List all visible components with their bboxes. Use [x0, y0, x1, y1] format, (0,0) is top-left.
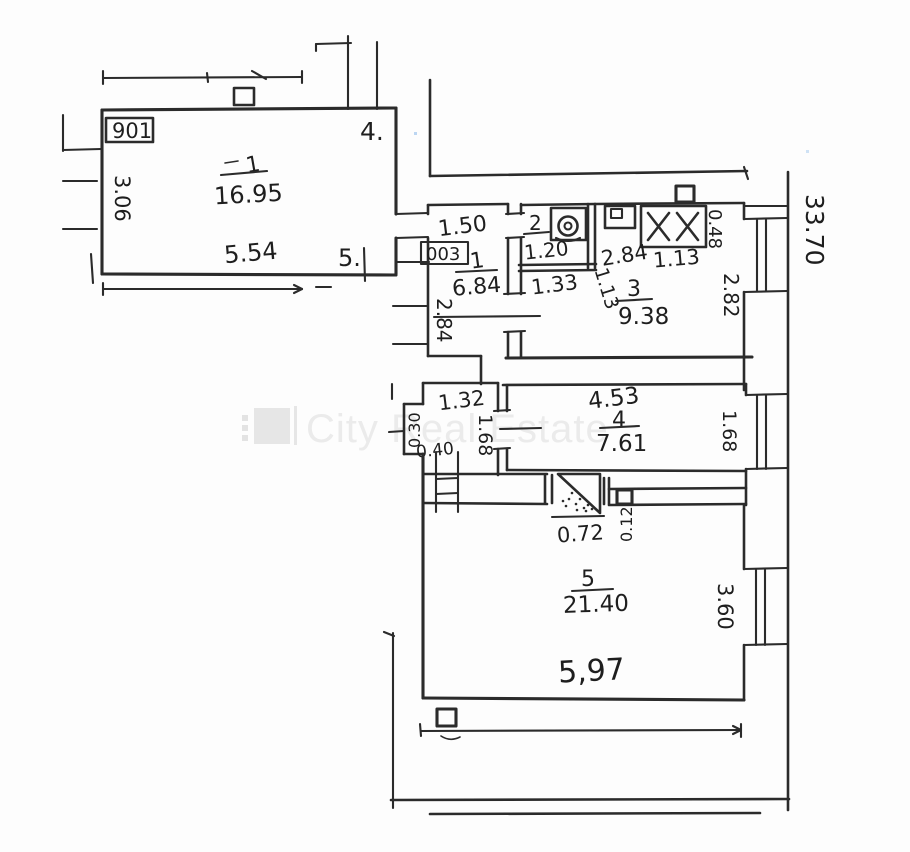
room5-depth: 3.60 [713, 583, 737, 630]
room4-number: 4 [612, 408, 626, 433]
scan-speck [414, 132, 417, 135]
stove-icon [641, 206, 706, 247]
entry-ledge: 0.12 [617, 506, 636, 542]
living-room-width: 5.54 [223, 237, 279, 270]
living-room-door-mark-bottom: 5. [338, 244, 361, 272]
wc-area: 1.20 [523, 236, 570, 265]
chimney-icon [234, 88, 254, 105]
kitchen-number: 3 [627, 277, 641, 302]
upper-boundary [430, 80, 748, 179]
vent-square-icon [676, 186, 694, 202]
kitchen-depth: 2.82 [719, 273, 743, 318]
watermark-dot [242, 425, 248, 431]
apartment-number: 901 [112, 119, 152, 143]
living-room-door-mark-top: 4. [360, 117, 384, 146]
chimney-square-icon [617, 490, 632, 504]
living-room-number: 1 [244, 152, 262, 179]
watermark-dot [242, 415, 248, 421]
hallway-labels: 1.50 003 1 6.84 2.84 [421, 211, 502, 342]
stairs-icon [558, 474, 600, 513]
watermark-brand-text: City Real Estate [306, 407, 609, 451]
room5-window [744, 568, 787, 645]
kitchen-window [745, 218, 787, 292]
entry-walls [423, 475, 746, 517]
wc-width: 1.33 [530, 270, 579, 300]
closet-depth: 1.68 [474, 414, 496, 456]
scanned-floor-plan: City Real Estate [0, 0, 910, 852]
hallway-area: 6.84 [451, 273, 502, 302]
watermark-dot [242, 435, 248, 441]
chimney-icon-bottom [437, 709, 456, 726]
scan-speck [806, 150, 809, 153]
entry-stair-width: 0.72 [556, 520, 604, 547]
watermark-divider [294, 406, 297, 445]
toilet-icon [551, 208, 586, 241]
entry-labels: 0.72 0.12 [556, 506, 636, 547]
building-length: 33.70 [800, 194, 829, 266]
hallway-door-width: 1.50 [437, 211, 489, 242]
hallway-depth: 2.84 [432, 298, 456, 343]
room4-depth: 1.68 [718, 410, 740, 452]
unit-number: 003 [426, 244, 460, 265]
room5-labels: 5 21.40 5,97 3.60 [557, 567, 737, 691]
kitchen-area: 9.38 [618, 304, 669, 330]
living-room-area: 16.95 [213, 179, 283, 211]
facade: 33.70 [788, 172, 829, 810]
room4-labels: 4.53 4 7.61 1.68 [587, 383, 740, 457]
room4-area: 7.61 [596, 431, 647, 457]
room5-number: 5 [581, 567, 595, 592]
room5-area: 21.40 [563, 591, 630, 619]
living-room-dimension-lines [63, 36, 377, 295]
watermark-logo-square [254, 408, 290, 444]
sink-icon [605, 206, 635, 228]
floor-plan-drawing: City Real Estate [0, 0, 910, 852]
living-room-labels: 901 1 16.95 5.54 4. 5. 3.06 [106, 117, 384, 272]
room5-width: 5,97 [557, 652, 626, 690]
living-room-depth: 3.06 [110, 175, 134, 222]
stove-width: 1.13 [652, 245, 701, 273]
wc-number: 2 [529, 211, 542, 235]
room4-window [746, 394, 787, 469]
stove-depth: 0.48 [704, 209, 725, 249]
